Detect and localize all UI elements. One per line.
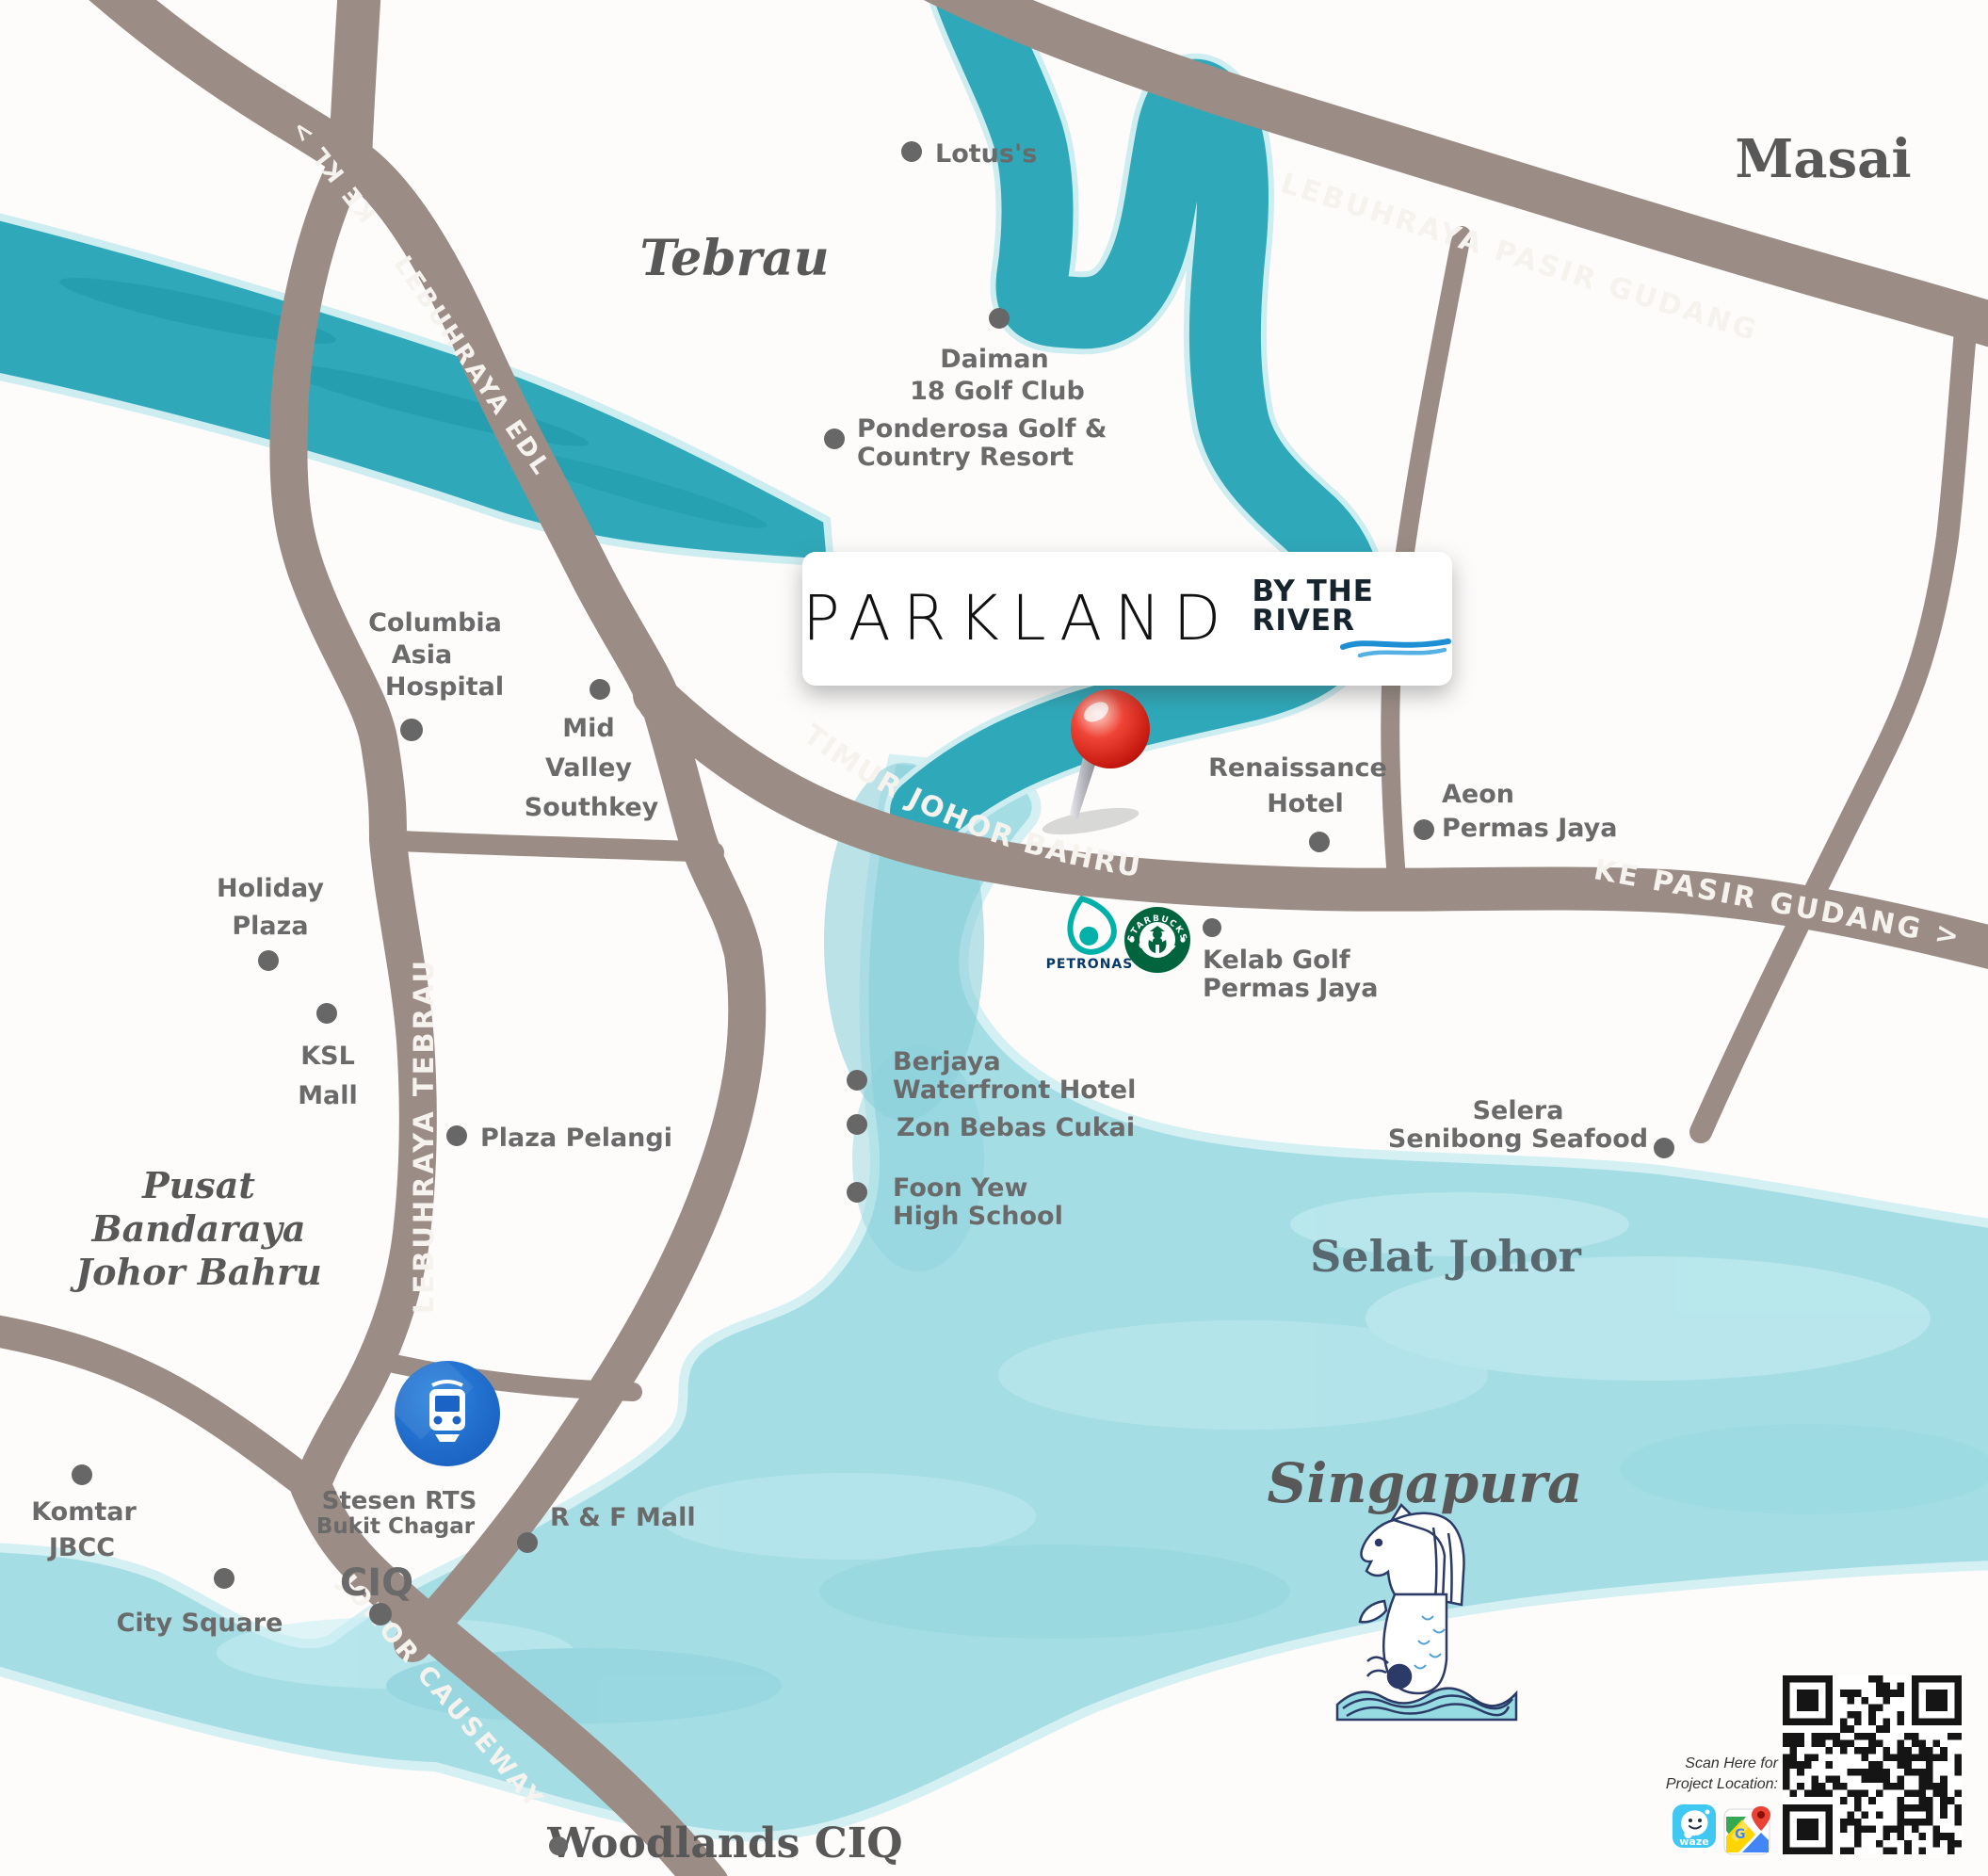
kelab-dot (1203, 918, 1221, 937)
daiman-label-2: 18 Golf Club (910, 377, 1085, 406)
qr-code (1783, 1675, 1962, 1854)
ksl-label-2: Mall (298, 1081, 358, 1110)
city-square-dot (214, 1568, 234, 1589)
selera-dot (1654, 1138, 1674, 1158)
woodlands-dot (549, 1836, 568, 1855)
qr-caption-line1: Scan Here for (1685, 1755, 1778, 1771)
road-label-tebrau: LEBUHRAYA TEBRAU (408, 958, 440, 1314)
midvalley-label-3: Southkey (525, 793, 659, 822)
lotus-label: Lotus's (935, 139, 1037, 169)
ksl-dot (316, 1003, 337, 1024)
berjaya-label-2: Waterfront Hotel (893, 1075, 1136, 1105)
komtar-label-1: Komtar (31, 1497, 137, 1527)
kelab-label-1: Kelab Golf (1203, 946, 1350, 975)
ponderosa-dot (824, 429, 845, 449)
qr-caption: Scan Here for Project Location: (1607, 1754, 1778, 1794)
ciq-label: CIQ (340, 1561, 413, 1605)
holiday-label-2: Plaza (232, 912, 308, 941)
region-masai: Masai (1735, 128, 1911, 190)
midvalley-label-1: Mid (562, 714, 614, 743)
qr-code-svg (1783, 1675, 1962, 1854)
starbucks-star-left (1129, 937, 1134, 942)
train-station-icon (395, 1361, 500, 1466)
map-canvas: KE KL > LEBUHRAYA EDL LEBUHRAYA PASIR GU… (0, 0, 1988, 1876)
logo-wave-icon (1339, 636, 1452, 660)
ponderosa-label-1: Ponderosa Golf & (857, 414, 1107, 444)
region-pusat-2: Bandaraya (91, 1207, 306, 1250)
zon-label: Zon Bebas Cukai (897, 1113, 1135, 1142)
columbia-label-3: Hospital (385, 672, 504, 702)
map-svg: KE KL > LEBUHRAYA EDL LEBUHRAYA PASIR GU… (0, 0, 1988, 1876)
city-square-label: City Square (117, 1609, 283, 1638)
komtar-dot (72, 1464, 92, 1485)
region-pusat-3: Johor Bahru (70, 1251, 322, 1293)
ponderosa-label-2: Country Resort (857, 443, 1074, 472)
rf-mall-label: R & F Mall (550, 1503, 696, 1532)
daiman-dot (989, 308, 1010, 329)
road-ke-kl (350, 0, 361, 158)
foonyew-label-1: Foon Yew (893, 1173, 1027, 1203)
map-app-icons: waze G (1673, 1804, 1774, 1855)
columbia-dot (400, 719, 423, 741)
renaissance-label-2: Hotel (1267, 789, 1344, 818)
midvalley-dot (590, 679, 610, 700)
aeon-label-1: Aeon (1442, 780, 1514, 809)
region-pusat-1: Pusat (141, 1164, 255, 1206)
holiday-label-1: Holiday (217, 874, 324, 903)
waze-wordmark: waze (1679, 1836, 1708, 1848)
columbia-label-2: Asia (392, 640, 452, 670)
region-woodlands: Woodlands CIQ (546, 1819, 902, 1868)
lotus-dot (901, 141, 922, 162)
stesen-label-2: Bukit Chagar (316, 1514, 476, 1539)
renaissance-dot (1309, 832, 1330, 852)
merlion-eye (1376, 1540, 1382, 1545)
selera-label-2: Senibong Seafood (1388, 1124, 1648, 1154)
waze-icon: waze (1673, 1804, 1716, 1853)
kelab-label-2: Permas Jaya (1203, 974, 1379, 1003)
midvalley-label-2: Valley (545, 753, 632, 783)
region-singapura: Singapura (1267, 1451, 1582, 1515)
berjaya-dot (847, 1070, 867, 1091)
komtar-label-2: JBCC (47, 1533, 115, 1562)
daiman-label-1: Daiman (940, 345, 1048, 374)
pin-ball-icon (1071, 689, 1150, 768)
renaissance-label-1: Renaissance (1208, 753, 1387, 783)
region-selat-johor: Selat Johor (1310, 1231, 1582, 1282)
google-maps-icon: G (1723, 1804, 1774, 1855)
project-logo-box: PARKLAND BY THE RIVER (802, 552, 1452, 686)
region-tebrau: Tebrau (639, 230, 829, 287)
qr-caption-line2: Project Location: (1666, 1776, 1778, 1792)
project-logo-subtitle-block: BY THE RIVER (1253, 577, 1453, 660)
aeon-dot (1414, 819, 1434, 840)
columbia-label-1: Columbia (368, 608, 502, 638)
ciq-dot (369, 1603, 392, 1625)
foonyew-label-2: High School (893, 1202, 1063, 1231)
stesen-label-1: Stesen RTS (322, 1487, 477, 1515)
starbucks-star-right (1180, 937, 1185, 942)
foonyew-dot (847, 1182, 867, 1203)
project-logo-subtitle: BY THE RIVER (1253, 577, 1453, 636)
plaza-pelangi-dot (446, 1125, 467, 1146)
plaza-pelangi-label: Plaza Pelangi (480, 1124, 672, 1153)
petronas-wordmark: PETRONAS (1046, 957, 1134, 972)
starbucks-logo: STARBUCKS COFFEE (1124, 907, 1190, 973)
zon-dot (847, 1114, 867, 1135)
berjaya-label-1: Berjaya (893, 1047, 1001, 1076)
road-midvalley-connector (381, 840, 714, 852)
holiday-dot (258, 950, 279, 971)
merlion-tail-curl (1388, 1665, 1411, 1688)
project-logo-title: PARKLAND (802, 588, 1234, 650)
gmaps-g-letter: G (1735, 1827, 1746, 1842)
rf-mall-dot (517, 1532, 538, 1553)
ksl-label-1: KSL (300, 1042, 355, 1071)
aeon-label-2: Permas Jaya (1442, 814, 1618, 843)
selera-label-1: Selera (1473, 1096, 1564, 1125)
